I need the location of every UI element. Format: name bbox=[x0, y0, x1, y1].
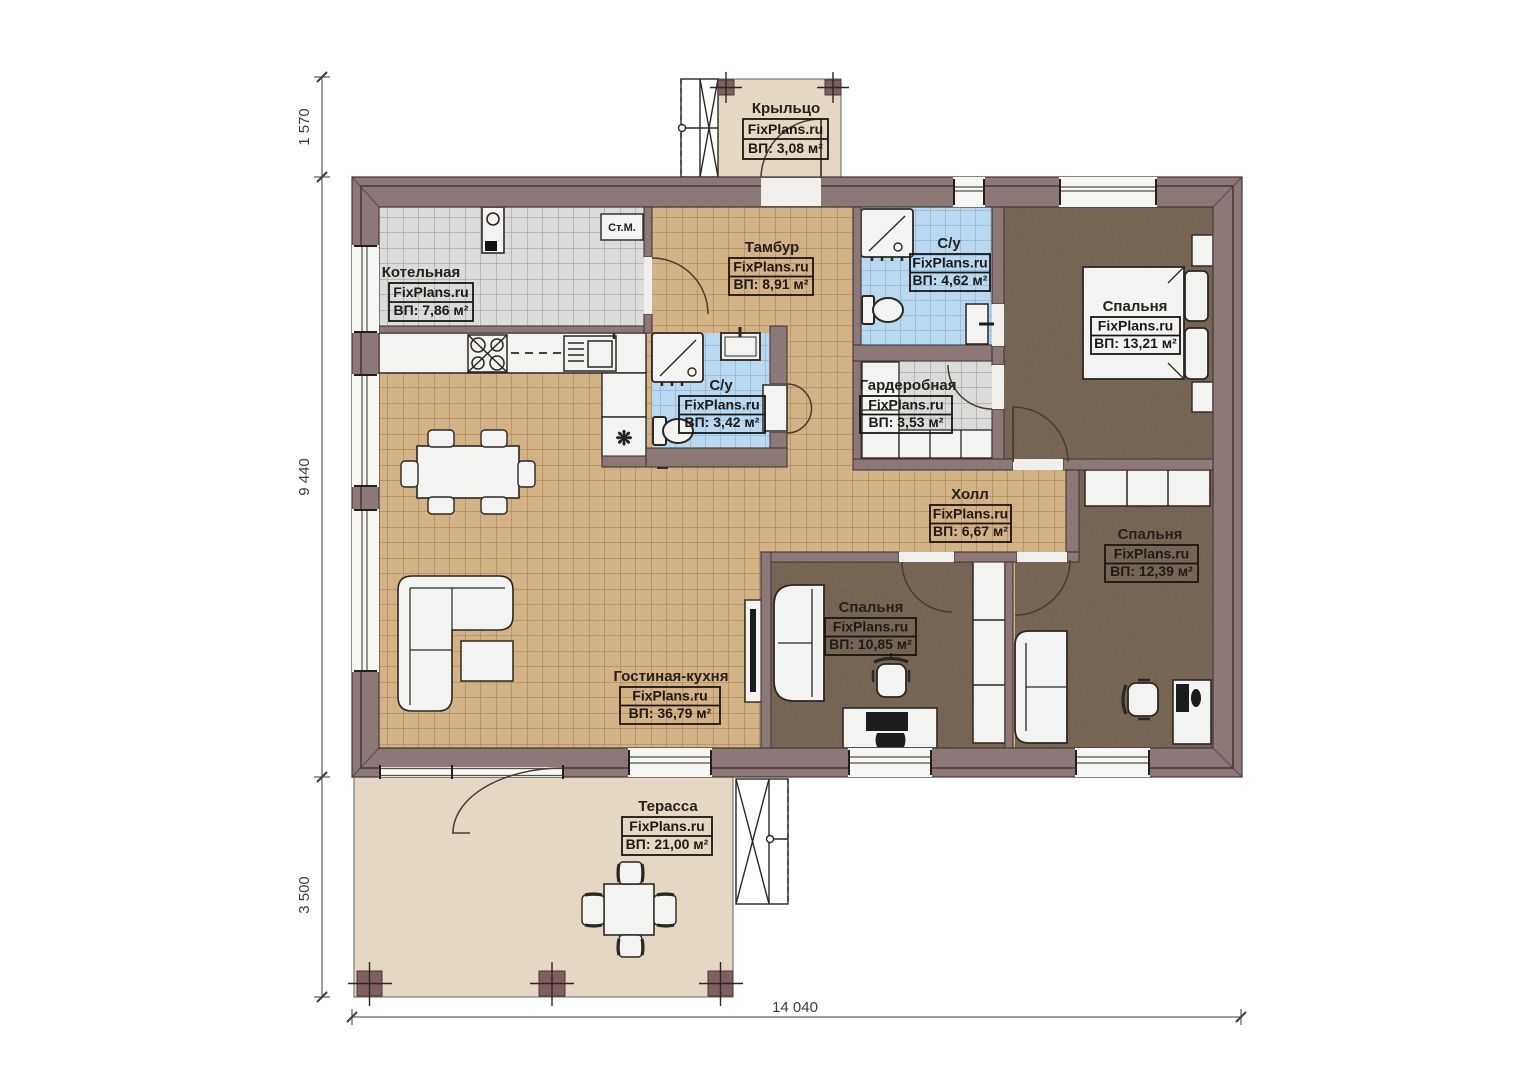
svg-text:С/у: С/у bbox=[937, 235, 961, 252]
svg-text:FixPlans.ru: FixPlans.ru bbox=[733, 259, 808, 275]
svg-text:ВП: 21,00 м²: ВП: 21,00 м² bbox=[626, 836, 709, 852]
svg-text:Спальня: Спальня bbox=[1118, 526, 1183, 543]
svg-text:3 500: 3 500 bbox=[296, 876, 313, 914]
svg-text:Котельная: Котельная bbox=[382, 264, 461, 281]
svg-text:Крыльцо: Крыльцо bbox=[752, 100, 820, 117]
svg-text:ВП: 8,91 м²: ВП: 8,91 м² bbox=[734, 276, 809, 292]
svg-text:FixPlans.ru: FixPlans.ru bbox=[912, 255, 987, 271]
svg-text:FixPlans.ru: FixPlans.ru bbox=[1114, 546, 1189, 562]
svg-text:14 040: 14 040 bbox=[772, 999, 818, 1016]
svg-text:❋: ❋ bbox=[616, 428, 633, 450]
svg-text:FixPlans.ru: FixPlans.ru bbox=[1098, 318, 1173, 334]
svg-text:FixPlans.ru: FixPlans.ru bbox=[393, 284, 468, 300]
svg-text:ВП: 13,21 м²: ВП: 13,21 м² bbox=[1094, 335, 1177, 351]
svg-text:Ст.М.: Ст.М. bbox=[608, 222, 636, 234]
svg-text:ВП: 12,39 м²: ВП: 12,39 м² bbox=[1110, 563, 1193, 579]
svg-text:9 440: 9 440 bbox=[296, 458, 313, 496]
svg-text:Спальня: Спальня bbox=[1103, 298, 1168, 315]
svg-text:ВП: 10,85 м²: ВП: 10,85 м² bbox=[829, 636, 912, 652]
svg-text:ВП: 3,42 м²: ВП: 3,42 м² bbox=[685, 414, 760, 430]
svg-text:Тамбур: Тамбур bbox=[745, 239, 799, 256]
svg-text:ВП: 3,53 м²: ВП: 3,53 м² bbox=[869, 414, 944, 430]
svg-text:ВП: 6,67 м²: ВП: 6,67 м² bbox=[933, 523, 1008, 539]
svg-text:FixPlans.ru: FixPlans.ru bbox=[629, 818, 704, 834]
svg-text:Терасса: Терасса bbox=[638, 798, 698, 815]
svg-text:FixPlans.ru: FixPlans.ru bbox=[833, 619, 908, 635]
svg-text:FixPlans.ru: FixPlans.ru bbox=[748, 121, 823, 137]
svg-text:ВП: 3,08 м²: ВП: 3,08 м² bbox=[748, 140, 823, 156]
svg-text:ВП: 36,79 м²: ВП: 36,79 м² bbox=[629, 705, 712, 721]
svg-text:Холл: Холл bbox=[951, 486, 989, 503]
svg-text:FixPlans.ru: FixPlans.ru bbox=[632, 688, 707, 704]
svg-text:FixPlans.ru: FixPlans.ru bbox=[868, 397, 943, 413]
svg-text:Гостиная-кухня: Гостиная-кухня bbox=[614, 668, 729, 685]
svg-text:ВП: 4,62 м²: ВП: 4,62 м² bbox=[913, 272, 988, 288]
svg-text:Спальня: Спальня bbox=[839, 599, 904, 616]
svg-text:FixPlans.ru: FixPlans.ru bbox=[684, 397, 759, 413]
svg-text:С/у: С/у bbox=[709, 377, 733, 394]
svg-text:FixPlans.ru: FixPlans.ru bbox=[933, 506, 1008, 522]
svg-text:ВП: 7,86 м²: ВП: 7,86 м² bbox=[394, 302, 469, 318]
svg-text:1 570: 1 570 bbox=[296, 108, 313, 146]
svg-text:Гардеробная: Гардеробная bbox=[859, 377, 956, 394]
